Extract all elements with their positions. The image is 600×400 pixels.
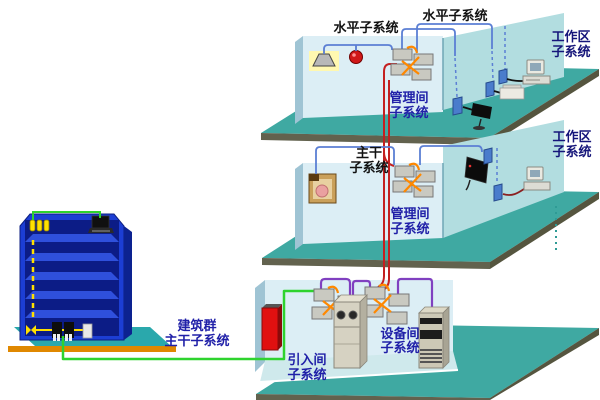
label-campus-backbone-subsystem-line1: 建筑群 <box>177 318 216 334</box>
diagram-svg: 水平子系统 水平子系统 工作区 子系统 管理间 子系统 主干 子系统 管理间 子… <box>0 0 600 400</box>
label-work-area-subsystem-mid-line2: 子系统 <box>552 144 591 160</box>
label-work-area-subsystem-top-line1: 工作区 <box>551 29 590 45</box>
wall-outlet-icon <box>494 184 502 201</box>
wall-speaker-icon <box>309 174 336 203</box>
label-backbone-subsystem-line1: 主干 <box>356 145 382 161</box>
label-horizontal-subsystem-b: 水平子系统 <box>422 8 487 24</box>
pbx-cabinet-icon <box>334 295 367 368</box>
server-rack-icon <box>419 307 449 368</box>
distribution-device-icon <box>30 220 49 231</box>
label-work-area-subsystem-mid-line1: 工作区 <box>552 129 591 145</box>
structured-cabling-diagram: 水平子系统 水平子系统 工作区 子系统 管理间 子系统 主干 子系统 管理间 子… <box>0 0 600 400</box>
entrance-protector-icon <box>262 304 282 350</box>
wall-outlet-icon <box>486 81 494 97</box>
office-building-icon <box>8 212 176 352</box>
wall-outlet-icon <box>499 69 507 84</box>
label-entrance-subsystem-line2: 子系统 <box>287 367 326 383</box>
label-work-area-subsystem-top-line2: 子系统 <box>551 44 590 60</box>
wall-outlet-icon <box>453 97 462 115</box>
label-equipment-room-subsystem-line1: 设备间 <box>380 326 419 342</box>
label-equipment-room-subsystem-line2: 子系统 <box>380 340 419 356</box>
label-campus-backbone-subsystem-line2: 主干子系统 <box>164 333 229 349</box>
label-horizontal-subsystem-a: 水平子系统 <box>333 20 398 36</box>
wall-outlet-icon <box>484 148 492 164</box>
label-management-subsystem-mid-line1: 管理间 <box>390 206 429 222</box>
label-management-subsystem-mid-line2: 子系统 <box>390 221 429 237</box>
label-management-subsystem-top-line1: 管理间 <box>389 90 428 106</box>
label-backbone-subsystem-line2: 子系统 <box>349 160 388 176</box>
label-management-subsystem-top-line2: 子系统 <box>389 105 428 121</box>
label-entrance-subsystem-line1: 引入间 <box>287 352 326 368</box>
